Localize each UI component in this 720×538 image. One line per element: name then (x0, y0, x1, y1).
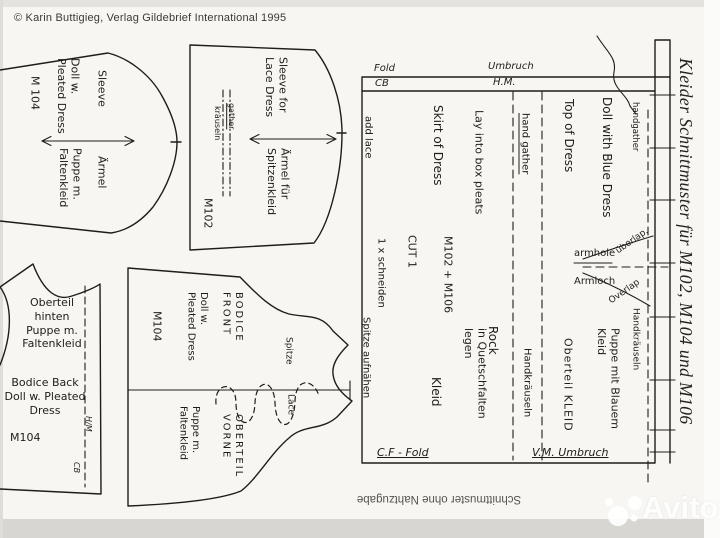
copyright-line: © Karin Buttigieg, Verlag Gildebrief Int… (14, 12, 286, 25)
dress-ticks (650, 95, 675, 452)
doll-blue-dress-label-de: Puppe mit BlauemKleid (594, 328, 622, 429)
bodice-front-code: M104 (150, 311, 163, 342)
bodice-back-hm: H/M (84, 416, 93, 432)
grainline-arrow-m102 (250, 135, 336, 144)
dress-codes: M102 + M106 (441, 236, 454, 313)
add-lace-label: add lace (362, 116, 374, 159)
kleid-label: Kleid (428, 377, 442, 407)
bodice-front-label-en: BODICEFRONT (219, 292, 244, 343)
m102-sleeve-label-en: Sleeve forLace Dress (262, 57, 290, 117)
m104-sleeve-label-de: Ärmel (95, 156, 108, 188)
hm-label: H.M. (493, 77, 516, 89)
watermark: Avito (598, 482, 720, 534)
sew-lace-label: Spitze aufnähen (360, 317, 372, 398)
bodice-front-desc: Doll w.Pleated Dress (184, 292, 209, 361)
doll-blue-dress-label: Doll with Blue Dress (599, 97, 613, 218)
cut-label-en: CUT 1 (405, 235, 418, 268)
bodice-back-label-de: Oberteilhinten Puppe m.Faltenkleid (14, 296, 90, 351)
lace-label-de: Spitze (283, 337, 293, 365)
armhole-label-de: Armloch (574, 276, 615, 288)
fold-label-en: Fold (374, 63, 395, 75)
m104-sleeve-label-en: Sleeve (95, 70, 108, 107)
bodice-back-code: M104 (10, 432, 41, 445)
handkraeuseln-label-1: Handkräuseln (521, 348, 533, 417)
m104-sleeve-desc-en: Doll w.Pleated Dress (54, 58, 82, 134)
watermark-text: Avito (642, 490, 718, 526)
pattern-sheet-scan: © Karin Buttigieg, Verlag Gildebrief Int… (0, 0, 720, 538)
no-seam-allowance-note: Schnittmuster ohne Nahtzugabe (348, 492, 530, 505)
skirt-label-en: Skirt of Dress (430, 105, 444, 186)
m104-sleeve-code: M 104 (28, 76, 41, 110)
handkraeuseln-label-2: Handkräuseln (630, 308, 640, 370)
armhole-label-en: armhole (574, 248, 615, 260)
avito-logo-icon (598, 482, 642, 534)
m102-gather-de: kräuseln (213, 106, 222, 140)
lace-label-en: Lace (285, 394, 295, 415)
bodice-front-label-de: OBERTEILVORNE (219, 414, 244, 478)
handgather-label: handgather (629, 102, 639, 151)
sleeve-m104-outline (0, 53, 177, 233)
fold-label-de: Umbruch (488, 61, 534, 73)
hand-gather-label: hand gather (519, 113, 531, 174)
m102-sleeve-label-de: Ärmel fürSpitzenkleid (264, 148, 292, 215)
m102-sleeve-code: M102 (201, 198, 214, 229)
cut-label-de: 1 x schneiden (375, 238, 387, 308)
sheet-title: Kleider Schnittmuster für M102, M104 und… (676, 58, 696, 425)
box-pleats-label-en: Lay into box pleats (472, 110, 485, 214)
cb-label: CB (375, 78, 389, 90)
bodice-back-label-en: Bodice BackDoll w. Pleated Dress (0, 376, 90, 417)
top-of-dress-label: Top of Dress (561, 99, 575, 172)
grainline-arrow-m104 (42, 137, 134, 146)
m104-sleeve-desc-de: Puppe m.Faltenkleid (56, 148, 84, 207)
oberteil-kleid-label: Oberteil KLEID (561, 338, 574, 432)
vm-umbruch-label: V.M. Umbruch (532, 447, 609, 460)
bodice-back-cb: CB (72, 462, 81, 473)
m102-gather-en: gather (227, 103, 236, 129)
bodice-front-puppe: Puppe m.Faltenkleid (176, 406, 201, 460)
cf-fold-label: C.F - Fold (377, 447, 429, 460)
box-pleats-label-de: in Quetschfaltenlegen (461, 328, 489, 419)
